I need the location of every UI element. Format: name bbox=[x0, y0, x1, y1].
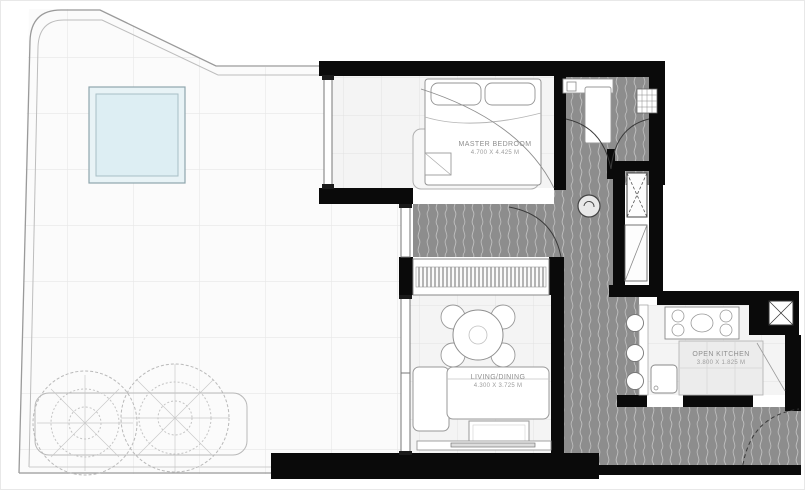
duct-box bbox=[769, 301, 793, 325]
floor-plan: MASTER BEDROOM 4.700 x 4.425 m LIVING/DI… bbox=[0, 0, 805, 490]
shower-tray bbox=[585, 87, 611, 143]
service-shaft bbox=[625, 225, 647, 281]
bar-stool bbox=[627, 345, 644, 362]
plunge-pool bbox=[89, 87, 185, 183]
drain-grate bbox=[637, 89, 657, 113]
glass-wall bbox=[399, 295, 412, 455]
elevator-shaft bbox=[627, 173, 647, 217]
tv bbox=[451, 443, 535, 447]
tree-icon bbox=[121, 364, 229, 472]
window bbox=[322, 75, 334, 189]
ceiling-light bbox=[578, 195, 600, 217]
cooktop bbox=[665, 307, 739, 339]
bedside-table bbox=[425, 153, 451, 175]
bar-stools bbox=[627, 315, 644, 390]
kitchen-sink bbox=[651, 365, 677, 393]
bar-stool bbox=[627, 373, 644, 390]
window bbox=[399, 204, 412, 257]
wardrobe bbox=[413, 259, 549, 295]
floor-plan-drawing bbox=[1, 1, 805, 490]
pillow bbox=[485, 83, 535, 105]
tv-bench bbox=[417, 441, 551, 450]
bar-stool bbox=[627, 315, 644, 332]
dining-table bbox=[453, 310, 503, 360]
